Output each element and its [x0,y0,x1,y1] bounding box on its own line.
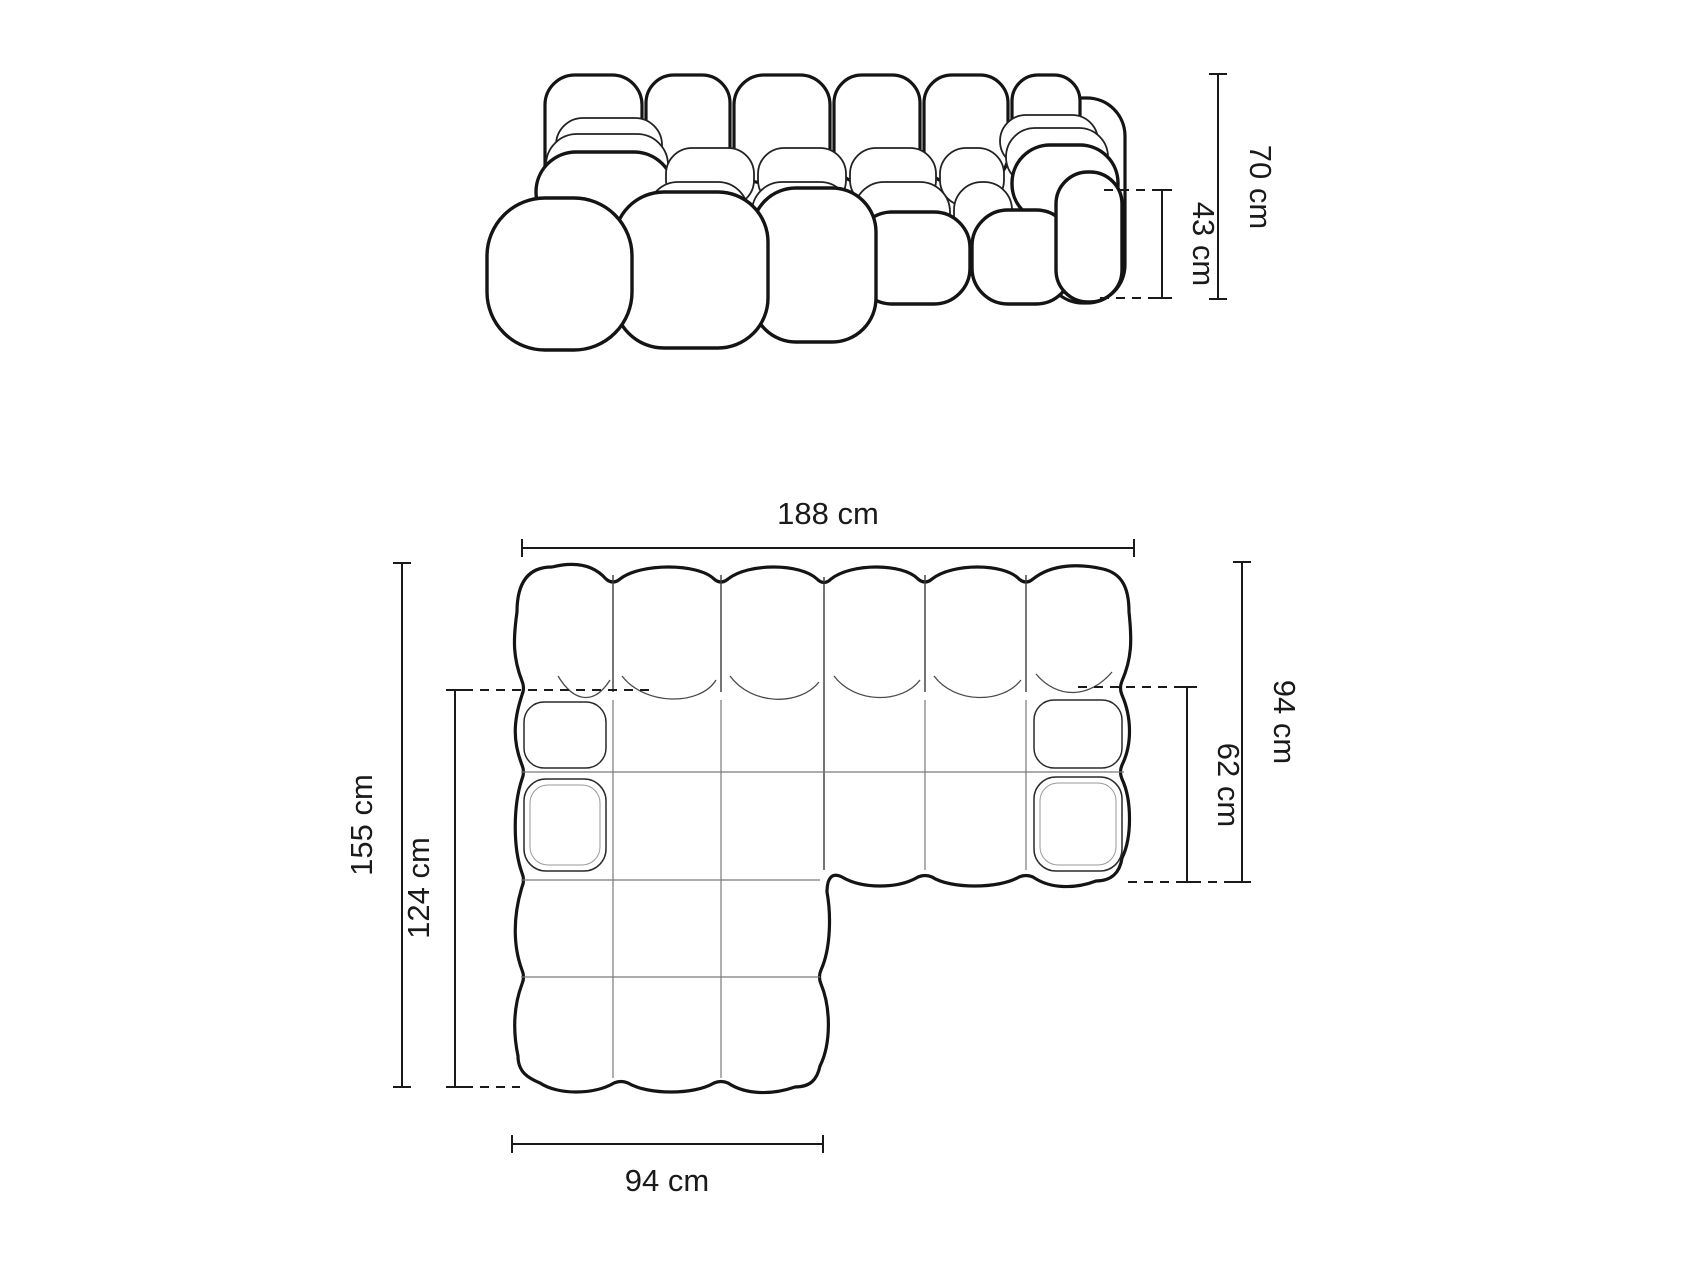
dim-label-total-width: 188 cm [777,496,879,531]
front-view-drawing [487,75,1125,350]
dim-top-total-depth: 155 cm [344,563,411,1087]
dim-label-chaise-inner-depth: 124 cm [401,837,436,939]
front-right-arm-base [1056,172,1122,302]
dim-label-seat-depth: 62 cm [1211,743,1246,827]
front-chaise-cushion [487,198,632,350]
front-chaise-cushion [752,188,876,342]
dim-label-right-section-depth: 94 cm [1267,680,1302,764]
front-chaise-cushion [614,192,768,348]
dim-label-total-depth: 155 cm [344,774,379,876]
top-view-outline [514,564,1130,1092]
dim-label-seat-height: 43 cm [1186,202,1221,286]
dim-label-chaise-width: 94 cm [625,1163,709,1198]
dim-top-right-section-depth: 94 cm [1233,562,1302,882]
page-background: 70 cm 43 cm [0,0,1683,1262]
dim-label-total-height: 70 cm [1243,145,1278,229]
sofa-dimension-diagram: 70 cm 43 cm [0,0,1683,1262]
dim-top-total-width: 188 cm [522,496,1134,557]
dim-top-chaise-width: 94 cm [512,1135,823,1198]
top-view-drawing [514,564,1130,1092]
